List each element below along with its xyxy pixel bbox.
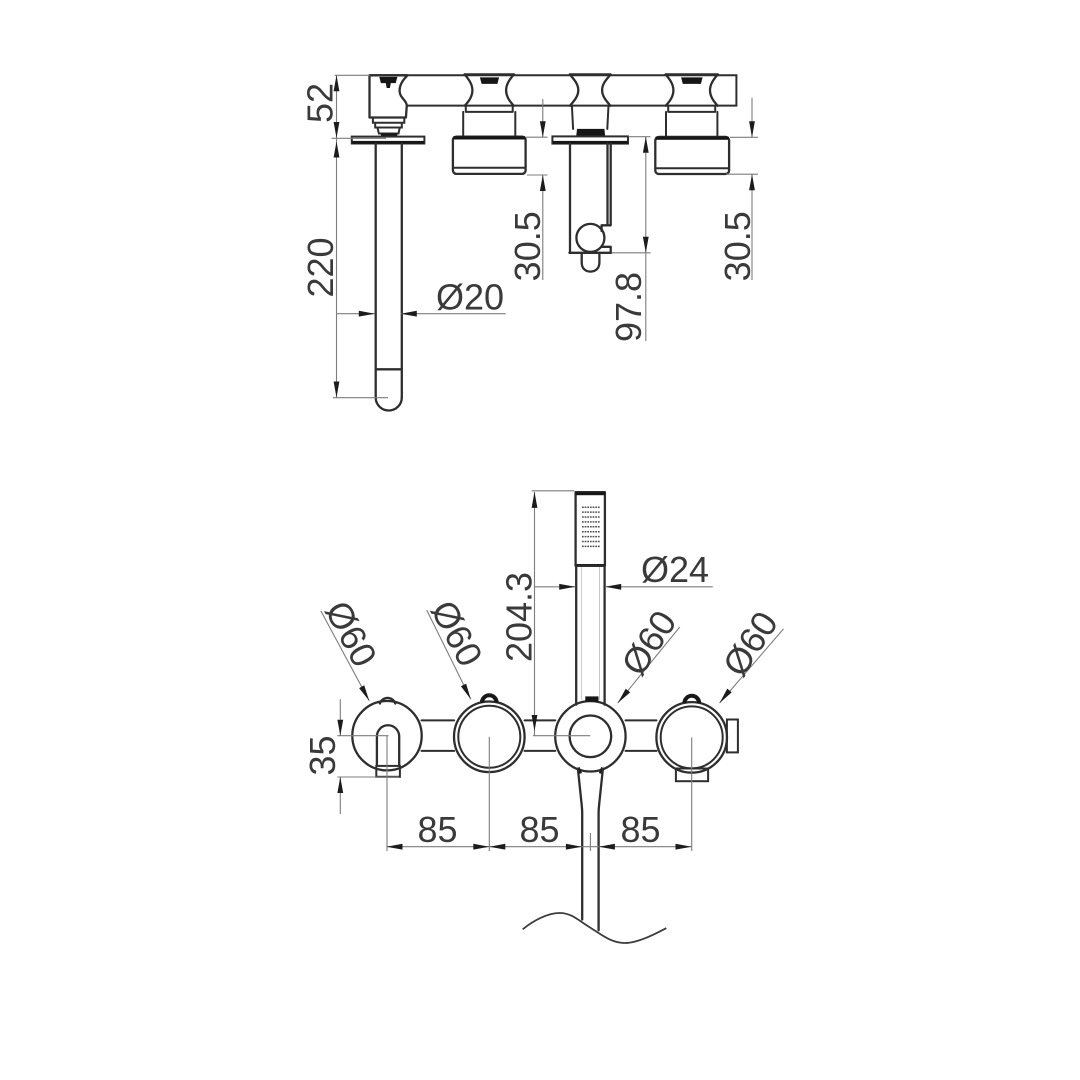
svg-text:35: 35 [302, 735, 343, 775]
svg-text:52: 52 [299, 83, 340, 123]
svg-text:Ø20: Ø20 [436, 277, 504, 318]
svg-text:Ø24: Ø24 [641, 549, 709, 590]
svg-text:204.3: 204.3 [498, 572, 539, 662]
svg-text:97.8: 97.8 [608, 272, 649, 342]
svg-text:85: 85 [519, 809, 559, 850]
svg-text:30.5: 30.5 [717, 211, 758, 281]
svg-text:220: 220 [300, 237, 341, 297]
svg-text:85: 85 [417, 809, 457, 850]
svg-text:30.5: 30.5 [507, 211, 548, 281]
svg-text:85: 85 [620, 809, 660, 850]
